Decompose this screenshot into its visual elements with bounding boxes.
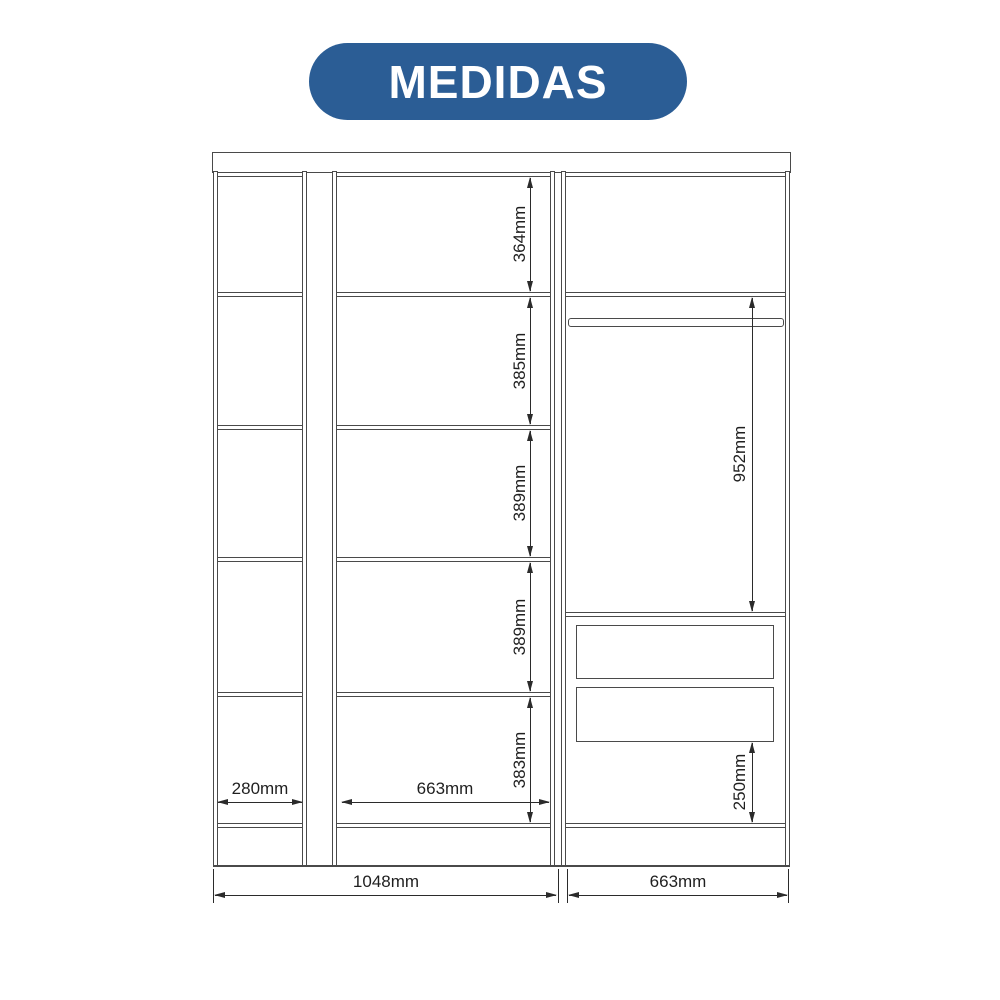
dim-label-389a: 389mm <box>510 465 530 522</box>
right-side-panel <box>785 171 790 867</box>
arrow-left <box>217 799 228 805</box>
arrow-up <box>527 430 533 441</box>
dim-label-280: 280mm <box>232 779 289 799</box>
extension-line-right <box>788 869 789 903</box>
arrow-right <box>292 799 303 805</box>
arrow-left <box>568 892 579 898</box>
shelf-middle-3 <box>336 557 551 562</box>
arrow-up <box>527 697 533 708</box>
left-side-panel <box>213 171 218 867</box>
arrow-right <box>539 799 550 805</box>
arrow-down <box>527 681 533 692</box>
ceiling-middle <box>336 172 551 177</box>
shelf-left-2 <box>217 425 303 430</box>
bottom-panel-middle <box>336 823 551 828</box>
dim-line-280 <box>218 802 302 803</box>
dim-line-663-outer <box>569 895 787 896</box>
ceiling-left <box>217 172 303 177</box>
drawer-2 <box>576 687 774 742</box>
dim-label-1048: 1048mm <box>353 872 419 892</box>
dim-label-383: 383mm <box>510 732 530 789</box>
shelf-left-1 <box>217 292 303 297</box>
bottom-panel-right <box>565 823 786 828</box>
ceiling-right <box>565 172 786 177</box>
arrow-right <box>777 892 788 898</box>
arrow-up <box>749 742 755 753</box>
arrow-up <box>527 177 533 188</box>
medidas-badge: MEDIDAS <box>309 43 687 120</box>
dim-label-250: 250mm <box>730 754 750 811</box>
arrow-up <box>749 297 755 308</box>
arrow-down <box>749 812 755 823</box>
top-panel <box>212 152 791 173</box>
dim-line-389b <box>530 563 531 691</box>
dim-label-385: 385mm <box>510 333 530 390</box>
arrow-down <box>527 414 533 425</box>
shelf-middle-2 <box>336 425 551 430</box>
dim-label-364: 364mm <box>510 206 530 263</box>
shelf-right-middle <box>565 612 786 617</box>
dim-line-1048 <box>215 895 556 896</box>
arrow-left <box>341 799 352 805</box>
shelf-left-3 <box>217 557 303 562</box>
product-measurements-image: MEDIDAS <box>0 0 1000 1000</box>
drawer-1 <box>576 625 774 679</box>
middle-module-right-panel <box>550 171 555 867</box>
arrow-down <box>527 812 533 823</box>
arrow-up <box>527 297 533 308</box>
shelf-middle-1 <box>336 292 551 297</box>
arrow-left <box>214 892 225 898</box>
arrow-down <box>527 546 533 557</box>
dim-label-663-inner: 663mm <box>417 779 474 799</box>
medidas-title: MEDIDAS <box>388 55 607 109</box>
dim-line-952 <box>752 298 753 611</box>
base-line <box>213 865 790 867</box>
shelf-middle-4 <box>336 692 551 697</box>
arrow-right <box>546 892 557 898</box>
arrow-down <box>749 601 755 612</box>
dim-label-663-outer: 663mm <box>650 872 707 892</box>
dim-label-389b: 389mm <box>510 599 530 656</box>
center-divider-right-panel <box>332 171 337 867</box>
arrow-down <box>527 281 533 292</box>
center-divider-left-panel <box>302 171 307 867</box>
dim-line-250 <box>752 743 753 822</box>
dim-line-364 <box>530 178 531 291</box>
extension-line-junction-a <box>558 869 559 903</box>
dim-line-385 <box>530 298 531 424</box>
dim-line-383 <box>530 698 531 822</box>
arrow-up <box>527 562 533 573</box>
dim-line-389a <box>530 431 531 556</box>
dim-label-952: 952mm <box>730 426 750 483</box>
right-module-left-panel <box>561 171 566 867</box>
bottom-panel-left <box>217 823 303 828</box>
dim-line-663-inner <box>342 802 549 803</box>
shelf-left-4 <box>217 692 303 697</box>
